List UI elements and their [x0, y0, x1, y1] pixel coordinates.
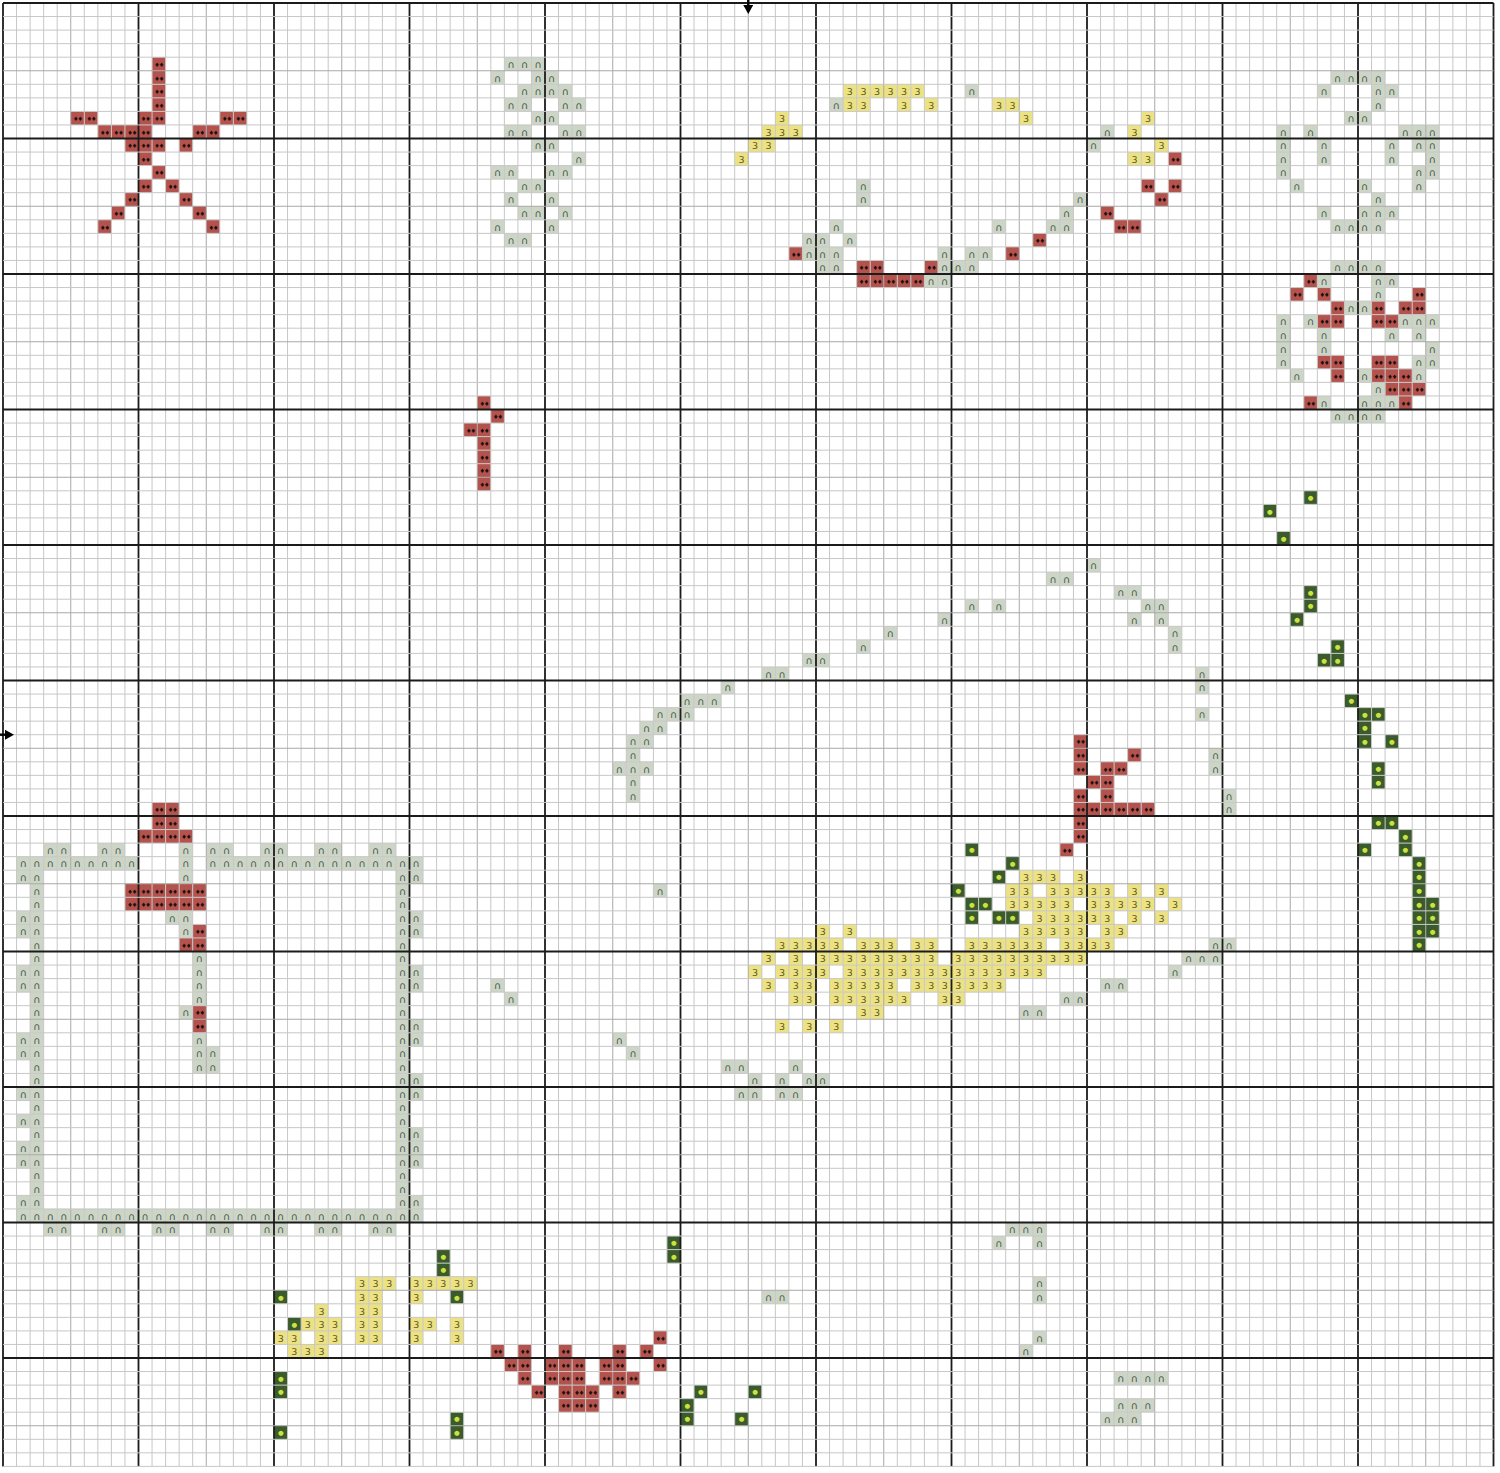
sage-symbol-arch-icon: ∩ [264, 858, 271, 869]
sage-symbol-arch-icon: ∩ [182, 926, 189, 937]
cross-stitch-pattern-chart: ♦♦♦♦♦♦♦♦♦♦♦♦♦♦♦♦♦♦♦♦♦♦♦♦♦♦♦♦♦♦♦♦♦♦♦♦♦♦♦♦… [0, 0, 1500, 1473]
yellow-symbol-three-icon: 3 [738, 154, 744, 165]
sage-symbol-arch-icon: ∩ [1036, 1238, 1043, 1249]
yellow-symbol-three-icon: 3 [1118, 899, 1124, 910]
green-symbol-dot-icon: ● [671, 1253, 677, 1261]
yellow-symbol-three-icon: 3 [373, 1306, 379, 1317]
sage-symbol-arch-icon: ∩ [413, 1035, 420, 1046]
yellow-symbol-three-icon: 3 [860, 994, 866, 1005]
yellow-symbol-three-icon: 3 [1077, 926, 1083, 937]
sage-symbol-arch-icon: ∩ [941, 249, 948, 260]
sage-symbol-arch-icon: ∩ [657, 723, 664, 734]
sage-symbol-arch-icon: ∩ [616, 764, 623, 775]
sage-symbol-arch-icon: ∩ [358, 1211, 365, 1222]
red-symbol-diamond-pair-icon: ♦♦ [222, 115, 232, 122]
sage-symbol-arch-icon: ∩ [169, 1224, 176, 1235]
yellow-symbol-three-icon: 3 [847, 100, 853, 111]
sage-symbol-arch-icon: ∩ [1320, 208, 1327, 219]
red-symbol-diamond-pair-icon: ♦♦ [1333, 373, 1343, 380]
sage-symbol-arch-icon: ∩ [1090, 140, 1097, 151]
yellow-symbol-three-icon: 3 [1050, 886, 1056, 897]
sage-symbol-arch-icon: ∩ [87, 1211, 94, 1222]
sage-symbol-arch-icon: ∩ [819, 249, 826, 260]
red-symbol-diamond-pair-icon: ♦♦ [886, 278, 896, 285]
sage-symbol-arch-icon: ∩ [548, 73, 555, 84]
sage-symbol-arch-icon: ∩ [982, 249, 989, 260]
sage-symbol-arch-icon: ∩ [1415, 330, 1422, 341]
sage-symbol-arch-icon: ∩ [196, 967, 203, 978]
sage-symbol-arch-icon: ∩ [1131, 1373, 1138, 1384]
red-symbol-diamond-pair-icon: ♦♦ [127, 901, 137, 908]
sage-symbol-arch-icon: ∩ [47, 858, 54, 869]
sage-symbol-arch-icon: ∩ [250, 858, 257, 869]
yellow-symbol-three-icon: 3 [1131, 913, 1137, 924]
sage-symbol-arch-icon: ∩ [399, 913, 406, 924]
sage-symbol-arch-icon: ∩ [548, 194, 555, 205]
sage-symbol-arch-icon: ∩ [1361, 113, 1368, 124]
sage-symbol-arch-icon: ∩ [399, 994, 406, 1005]
yellow-symbol-three-icon: 3 [969, 980, 975, 991]
red-symbol-diamond-pair-icon: ♦♦ [479, 400, 489, 407]
yellow-symbol-three-icon: 3 [820, 940, 826, 951]
sage-symbol-arch-icon: ∩ [1415, 357, 1422, 368]
sage-symbol-arch-icon: ∩ [1280, 127, 1287, 138]
yellow-symbol-three-icon: 3 [318, 1346, 324, 1357]
sage-symbol-arch-icon: ∩ [765, 1292, 772, 1303]
sage-symbol-arch-icon: ∩ [1429, 127, 1436, 138]
sage-symbol-arch-icon: ∩ [209, 845, 216, 856]
sage-symbol-arch-icon: ∩ [1158, 615, 1165, 626]
red-symbol-diamond-pair-icon: ♦♦ [1157, 196, 1167, 203]
sage-symbol-arch-icon: ∩ [629, 736, 636, 747]
yellow-symbol-three-icon: 3 [847, 980, 853, 991]
sage-symbol-arch-icon: ∩ [115, 1211, 122, 1222]
green-symbol-dot-icon: ● [278, 1429, 284, 1437]
sage-symbol-arch-icon: ∩ [968, 86, 975, 97]
sage-symbol-arch-icon: ∩ [629, 764, 636, 775]
green-symbol-dot-icon: ● [955, 887, 961, 895]
red-symbol-diamond-pair-icon: ♦♦ [1008, 251, 1018, 258]
red-symbol-diamond-pair-icon: ♦♦ [127, 142, 137, 149]
sage-symbol-arch-icon: ∩ [209, 1211, 216, 1222]
sage-symbol-arch-icon: ∩ [684, 709, 691, 720]
yellow-symbol-three-icon: 3 [1064, 940, 1070, 951]
sage-symbol-arch-icon: ∩ [1348, 262, 1355, 273]
red-symbol-diamond-pair-icon: ♦♦ [479, 440, 489, 447]
yellow-symbol-three-icon: 3 [820, 953, 826, 964]
yellow-symbol-three-icon: 3 [1104, 886, 1110, 897]
red-symbol-diamond-pair-icon: ♦♦ [1062, 847, 1072, 854]
sage-symbol-arch-icon: ∩ [182, 1007, 189, 1018]
sage-symbol-arch-icon: ∩ [1117, 1400, 1124, 1411]
sage-symbol-arch-icon: ∩ [521, 127, 528, 138]
sage-symbol-arch-icon: ∩ [1388, 154, 1395, 165]
yellow-symbol-three-icon: 3 [1172, 899, 1178, 910]
sage-symbol-arch-icon: ∩ [860, 194, 867, 205]
sage-symbol-arch-icon: ∩ [833, 262, 840, 273]
sage-symbol-arch-icon: ∩ [196, 1062, 203, 1073]
sage-symbol-arch-icon: ∩ [806, 249, 813, 260]
sage-symbol-arch-icon: ∩ [1036, 1278, 1043, 1289]
green-symbol-dot-icon: ● [454, 1294, 460, 1302]
green-symbol-dot-icon: ● [1375, 819, 1381, 827]
sage-symbol-arch-icon: ∩ [182, 872, 189, 883]
sage-symbol-arch-icon: ∩ [399, 1048, 406, 1059]
green-symbol-dot-icon: ● [278, 1375, 284, 1383]
yellow-symbol-three-icon: 3 [901, 967, 907, 978]
sage-symbol-arch-icon: ∩ [399, 858, 406, 869]
red-symbol-diamond-pair-icon: ♦♦ [1076, 833, 1086, 840]
sage-symbol-arch-icon: ∩ [399, 1035, 406, 1046]
sage-symbol-arch-icon: ∩ [1348, 113, 1355, 124]
sage-symbol-arch-icon: ∩ [1361, 208, 1368, 219]
sage-symbol-arch-icon: ∩ [33, 994, 40, 1005]
red-symbol-diamond-pair-icon: ♦♦ [859, 278, 869, 285]
sage-symbol-arch-icon: ∩ [1199, 709, 1206, 720]
top-center-arrow-stem [747, 0, 749, 6]
red-symbol-diamond-pair-icon: ♦♦ [479, 454, 489, 461]
red-symbol-diamond-pair-icon: ♦♦ [1035, 237, 1045, 244]
yellow-symbol-three-icon: 3 [901, 994, 907, 1005]
yellow-symbol-three-icon: 3 [766, 127, 772, 138]
sage-symbol-arch-icon: ∩ [1158, 1373, 1165, 1384]
yellow-symbol-three-icon: 3 [901, 953, 907, 964]
yellow-symbol-three-icon: 3 [860, 1007, 866, 1018]
red-symbol-diamond-pair-icon: ♦♦ [588, 1389, 598, 1396]
red-symbol-diamond-pair-icon: ♦♦ [154, 75, 164, 82]
red-symbol-diamond-pair-icon: ♦♦ [520, 1375, 530, 1382]
red-symbol-diamond-pair-icon: ♦♦ [168, 820, 178, 827]
sage-symbol-arch-icon: ∩ [765, 669, 772, 680]
sage-symbol-arch-icon: ∩ [33, 913, 40, 924]
sage-symbol-arch-icon: ∩ [1280, 316, 1287, 327]
green-symbol-dot-icon: ● [1416, 860, 1422, 868]
sage-symbol-arch-icon: ∩ [711, 696, 718, 707]
sage-symbol-arch-icon: ∩ [1334, 411, 1341, 422]
sage-symbol-arch-icon: ∩ [819, 262, 826, 273]
sage-symbol-arch-icon: ∩ [20, 967, 27, 978]
yellow-symbol-three-icon: 3 [860, 100, 866, 111]
sage-symbol-arch-icon: ∩ [778, 1089, 785, 1100]
yellow-symbol-three-icon: 3 [955, 980, 961, 991]
sage-symbol-arch-icon: ∩ [331, 1224, 338, 1235]
sage-symbol-arch-icon: ∩ [318, 845, 325, 856]
sage-symbol-arch-icon: ∩ [1429, 357, 1436, 368]
red-symbol-diamond-pair-icon: ♦♦ [1320, 291, 1330, 298]
yellow-symbol-three-icon: 3 [820, 967, 826, 978]
sage-symbol-arch-icon: ∩ [372, 1224, 379, 1235]
sage-symbol-arch-icon: ∩ [562, 100, 569, 111]
red-symbol-diamond-pair-icon: ♦♦ [154, 88, 164, 95]
yellow-symbol-three-icon: 3 [1050, 872, 1056, 883]
red-symbol-diamond-pair-icon: ♦♦ [1116, 766, 1126, 773]
red-symbol-diamond-pair-icon: ♦♦ [154, 115, 164, 122]
red-symbol-diamond-pair-icon: ♦♦ [114, 210, 124, 217]
sage-symbol-arch-icon: ∩ [995, 1238, 1002, 1249]
red-symbol-diamond-pair-icon: ♦♦ [1103, 766, 1113, 773]
sage-symbol-arch-icon: ∩ [535, 113, 542, 124]
sage-symbol-arch-icon: ∩ [1212, 940, 1219, 951]
green-symbol-dot-icon: ● [1281, 535, 1287, 543]
sage-symbol-arch-icon: ∩ [846, 235, 853, 246]
red-symbol-diamond-pair-icon: ♦♦ [168, 833, 178, 840]
sage-symbol-arch-icon: ∩ [399, 1184, 406, 1195]
red-symbol-diamond-pair-icon: ♦♦ [73, 115, 83, 122]
red-symbol-diamond-pair-icon: ♦♦ [181, 888, 191, 895]
sage-symbol-arch-icon: ∩ [413, 980, 420, 991]
sage-symbol-arch-icon: ∩ [1415, 181, 1422, 192]
sage-symbol-arch-icon: ∩ [575, 100, 582, 111]
sage-symbol-arch-icon: ∩ [1388, 208, 1395, 219]
sage-symbol-arch-icon: ∩ [1361, 398, 1368, 409]
sage-symbol-arch-icon: ∩ [1415, 167, 1422, 178]
sage-symbol-arch-icon: ∩ [1375, 73, 1382, 84]
green-symbol-dot-icon: ● [1267, 508, 1273, 516]
red-symbol-diamond-pair-icon: ♦♦ [141, 888, 151, 895]
yellow-symbol-three-icon: 3 [752, 967, 758, 978]
sage-symbol-arch-icon: ∩ [494, 73, 501, 84]
yellow-symbol-three-icon: 3 [793, 994, 799, 1005]
yellow-symbol-three-icon: 3 [969, 940, 975, 951]
sage-symbol-arch-icon: ∩ [318, 1224, 325, 1235]
red-symbol-diamond-pair-icon: ♦♦ [1143, 183, 1153, 190]
yellow-symbol-three-icon: 3 [1091, 899, 1097, 910]
red-symbol-diamond-pair-icon: ♦♦ [195, 928, 205, 935]
sage-symbol-arch-icon: ∩ [386, 845, 393, 856]
green-symbol-dot-icon: ● [1010, 860, 1016, 868]
yellow-symbol-three-icon: 3 [1077, 886, 1083, 897]
red-symbol-diamond-pair-icon: ♦♦ [100, 224, 110, 231]
sage-symbol-arch-icon: ∩ [521, 208, 528, 219]
yellow-symbol-three-icon: 3 [1091, 913, 1097, 924]
sage-symbol-arch-icon: ∩ [33, 1021, 40, 1032]
sage-symbol-arch-icon: ∩ [33, 1102, 40, 1113]
sage-symbol-arch-icon: ∩ [1348, 222, 1355, 233]
red-symbol-diamond-pair-icon: ♦♦ [574, 1375, 584, 1382]
green-symbol-dot-icon: ● [441, 1253, 447, 1261]
red-symbol-diamond-pair-icon: ♦♦ [1130, 224, 1140, 231]
red-symbol-diamond-pair-icon: ♦♦ [859, 264, 869, 271]
sage-symbol-arch-icon: ∩ [1022, 1007, 1029, 1018]
yellow-symbol-three-icon: 3 [1131, 154, 1137, 165]
yellow-symbol-three-icon: 3 [332, 1333, 338, 1344]
chart-background [0, 0, 1500, 1473]
green-symbol-dot-icon: ● [996, 914, 1002, 922]
red-symbol-diamond-pair-icon: ♦♦ [141, 129, 151, 136]
yellow-symbol-three-icon: 3 [373, 1292, 379, 1303]
red-symbol-diamond-pair-icon: ♦♦ [114, 129, 124, 136]
green-symbol-dot-icon: ● [1362, 724, 1368, 732]
sage-symbol-arch-icon: ∩ [60, 1224, 67, 1235]
sage-symbol-arch-icon: ∩ [1280, 167, 1287, 178]
yellow-symbol-three-icon: 3 [1145, 899, 1151, 910]
yellow-symbol-three-icon: 3 [860, 953, 866, 964]
green-symbol-dot-icon: ● [1308, 589, 1314, 597]
sage-symbol-arch-icon: ∩ [399, 1157, 406, 1168]
sage-symbol-arch-icon: ∩ [399, 1089, 406, 1100]
sage-symbol-arch-icon: ∩ [819, 235, 826, 246]
red-symbol-diamond-pair-icon: ♦♦ [1130, 806, 1140, 813]
red-symbol-diamond-pair-icon: ♦♦ [1414, 386, 1424, 393]
sage-symbol-arch-icon: ∩ [1022, 1224, 1029, 1235]
green-symbol-dot-icon: ● [1430, 914, 1436, 922]
sage-symbol-arch-icon: ∩ [860, 181, 867, 192]
sage-symbol-arch-icon: ∩ [1171, 628, 1178, 639]
sage-symbol-arch-icon: ∩ [1375, 100, 1382, 111]
red-symbol-diamond-pair-icon: ♦♦ [168, 806, 178, 813]
sage-symbol-arch-icon: ∩ [1361, 222, 1368, 233]
yellow-symbol-three-icon: 3 [1104, 940, 1110, 951]
sage-symbol-arch-icon: ∩ [318, 858, 325, 869]
red-symbol-diamond-pair-icon: ♦♦ [141, 901, 151, 908]
sage-symbol-arch-icon: ∩ [358, 858, 365, 869]
red-symbol-diamond-pair-icon: ♦♦ [1414, 305, 1424, 312]
red-symbol-diamond-pair-icon: ♦♦ [127, 129, 137, 136]
yellow-symbol-three-icon: 3 [1159, 886, 1165, 897]
yellow-symbol-three-icon: 3 [1091, 940, 1097, 951]
yellow-symbol-three-icon: 3 [454, 1319, 460, 1330]
sage-symbol-arch-icon: ∩ [548, 140, 555, 151]
sage-symbol-arch-icon: ∩ [413, 1157, 420, 1168]
sage-symbol-arch-icon: ∩ [399, 1007, 406, 1018]
red-symbol-diamond-pair-icon: ♦♦ [1374, 318, 1384, 325]
red-symbol-diamond-pair-icon: ♦♦ [1387, 373, 1397, 380]
sage-symbol-arch-icon: ∩ [33, 1007, 40, 1018]
green-symbol-dot-icon: ● [969, 914, 975, 922]
sage-symbol-arch-icon: ∩ [1117, 980, 1124, 991]
sage-symbol-arch-icon: ∩ [386, 1211, 393, 1222]
red-symbol-diamond-pair-icon: ♦♦ [208, 224, 218, 231]
red-symbol-diamond-pair-icon: ♦♦ [1374, 359, 1384, 366]
sage-symbol-arch-icon: ∩ [115, 858, 122, 869]
yellow-symbol-three-icon: 3 [1023, 899, 1029, 910]
yellow-symbol-three-icon: 3 [874, 967, 880, 978]
sage-symbol-arch-icon: ∩ [792, 1089, 799, 1100]
sage-symbol-arch-icon: ∩ [507, 127, 514, 138]
red-symbol-diamond-pair-icon: ♦♦ [1076, 820, 1086, 827]
yellow-symbol-three-icon: 3 [1077, 913, 1083, 924]
sage-symbol-arch-icon: ∩ [196, 1211, 203, 1222]
sage-symbol-arch-icon: ∩ [629, 777, 636, 788]
yellow-symbol-three-icon: 3 [752, 140, 758, 151]
yellow-symbol-three-icon: 3 [359, 1319, 365, 1330]
sage-symbol-arch-icon: ∩ [1361, 303, 1368, 314]
sage-symbol-arch-icon: ∩ [521, 235, 528, 246]
red-symbol-diamond-pair-icon: ♦♦ [601, 1375, 611, 1382]
yellow-symbol-three-icon: 3 [427, 1278, 433, 1289]
sage-symbol-arch-icon: ∩ [670, 709, 677, 720]
red-symbol-diamond-pair-icon: ♦♦ [561, 1375, 571, 1382]
yellow-symbol-three-icon: 3 [1009, 886, 1015, 897]
red-symbol-diamond-pair-icon: ♦♦ [154, 888, 164, 895]
yellow-symbol-three-icon: 3 [373, 1319, 379, 1330]
sage-symbol-arch-icon: ∩ [1375, 276, 1382, 287]
sage-symbol-arch-icon: ∩ [1199, 682, 1206, 693]
yellow-symbol-three-icon: 3 [928, 953, 934, 964]
sage-symbol-arch-icon: ∩ [115, 1224, 122, 1235]
red-symbol-diamond-pair-icon: ♦♦ [1333, 359, 1343, 366]
sage-symbol-arch-icon: ∩ [33, 1048, 40, 1059]
sage-symbol-arch-icon: ∩ [209, 858, 216, 869]
left-center-arrow-stem [0, 734, 6, 736]
sage-symbol-arch-icon: ∩ [1063, 994, 1070, 1005]
yellow-symbol-three-icon: 3 [1118, 926, 1124, 937]
sage-symbol-arch-icon: ∩ [20, 872, 27, 883]
sage-symbol-arch-icon: ∩ [33, 1035, 40, 1046]
yellow-symbol-three-icon: 3 [332, 1319, 338, 1330]
sage-symbol-arch-icon: ∩ [277, 858, 284, 869]
yellow-symbol-three-icon: 3 [766, 140, 772, 151]
red-symbol-diamond-pair-icon: ♦♦ [615, 1362, 625, 1369]
red-symbol-diamond-pair-icon: ♦♦ [1116, 224, 1126, 231]
sage-symbol-arch-icon: ∩ [1334, 73, 1341, 84]
yellow-symbol-three-icon: 3 [982, 967, 988, 978]
yellow-symbol-three-icon: 3 [1077, 953, 1083, 964]
red-symbol-diamond-pair-icon: ♦♦ [1076, 738, 1086, 745]
yellow-symbol-three-icon: 3 [928, 967, 934, 978]
sage-symbol-arch-icon: ∩ [1063, 208, 1070, 219]
sage-symbol-arch-icon: ∩ [833, 249, 840, 260]
sage-symbol-arch-icon: ∩ [399, 1143, 406, 1154]
yellow-symbol-three-icon: 3 [1023, 872, 1029, 883]
yellow-symbol-three-icon: 3 [847, 926, 853, 937]
sage-symbol-arch-icon: ∩ [507, 167, 514, 178]
red-symbol-diamond-pair-icon: ♦♦ [561, 1402, 571, 1409]
sage-symbol-arch-icon: ∩ [1388, 330, 1395, 341]
sage-symbol-arch-icon: ∩ [1334, 262, 1341, 273]
sage-symbol-arch-icon: ∩ [223, 845, 230, 856]
sage-symbol-arch-icon: ∩ [1320, 276, 1327, 287]
red-symbol-diamond-pair-icon: ♦♦ [1387, 386, 1397, 393]
green-symbol-dot-icon: ● [969, 901, 975, 909]
red-symbol-diamond-pair-icon: ♦♦ [1387, 359, 1397, 366]
yellow-symbol-three-icon: 3 [1077, 940, 1083, 951]
sage-symbol-arch-icon: ∩ [1104, 980, 1111, 991]
yellow-symbol-three-icon: 3 [467, 1278, 473, 1289]
red-symbol-diamond-pair-icon: ♦♦ [168, 901, 178, 908]
sage-symbol-arch-icon: ∩ [1334, 222, 1341, 233]
sage-symbol-arch-icon: ∩ [304, 858, 311, 869]
yellow-symbol-three-icon: 3 [888, 86, 894, 97]
sage-symbol-arch-icon: ∩ [20, 1157, 27, 1168]
yellow-symbol-three-icon: 3 [874, 980, 880, 991]
yellow-symbol-three-icon: 3 [305, 1319, 311, 1330]
yellow-symbol-three-icon: 3 [318, 1333, 324, 1344]
yellow-symbol-three-icon: 3 [969, 953, 975, 964]
red-symbol-diamond-pair-icon: ♦♦ [574, 1362, 584, 1369]
red-symbol-diamond-pair-icon: ♦♦ [181, 833, 191, 840]
sage-symbol-arch-icon: ∩ [33, 1116, 40, 1127]
sage-symbol-arch-icon: ∩ [751, 1075, 758, 1086]
yellow-symbol-three-icon: 3 [793, 940, 799, 951]
green-symbol-dot-icon: ● [1335, 643, 1341, 651]
sage-symbol-arch-icon: ∩ [1307, 316, 1314, 327]
green-symbol-dot-icon: ● [454, 1415, 460, 1423]
sage-symbol-arch-icon: ∩ [399, 1021, 406, 1032]
yellow-symbol-three-icon: 3 [359, 1333, 365, 1344]
yellow-symbol-three-icon: 3 [1064, 953, 1070, 964]
sage-symbol-arch-icon: ∩ [1429, 167, 1436, 178]
sage-symbol-arch-icon: ∩ [196, 994, 203, 1005]
sage-symbol-arch-icon: ∩ [1009, 1224, 1016, 1235]
red-symbol-diamond-pair-icon: ♦♦ [1103, 793, 1113, 800]
sage-symbol-arch-icon: ∩ [521, 59, 528, 70]
red-symbol-diamond-pair-icon: ♦♦ [479, 467, 489, 474]
sage-symbol-arch-icon: ∩ [1185, 953, 1192, 964]
yellow-symbol-three-icon: 3 [996, 100, 1002, 111]
red-symbol-diamond-pair-icon: ♦♦ [615, 1348, 625, 1355]
green-symbol-dot-icon: ● [454, 1429, 460, 1437]
